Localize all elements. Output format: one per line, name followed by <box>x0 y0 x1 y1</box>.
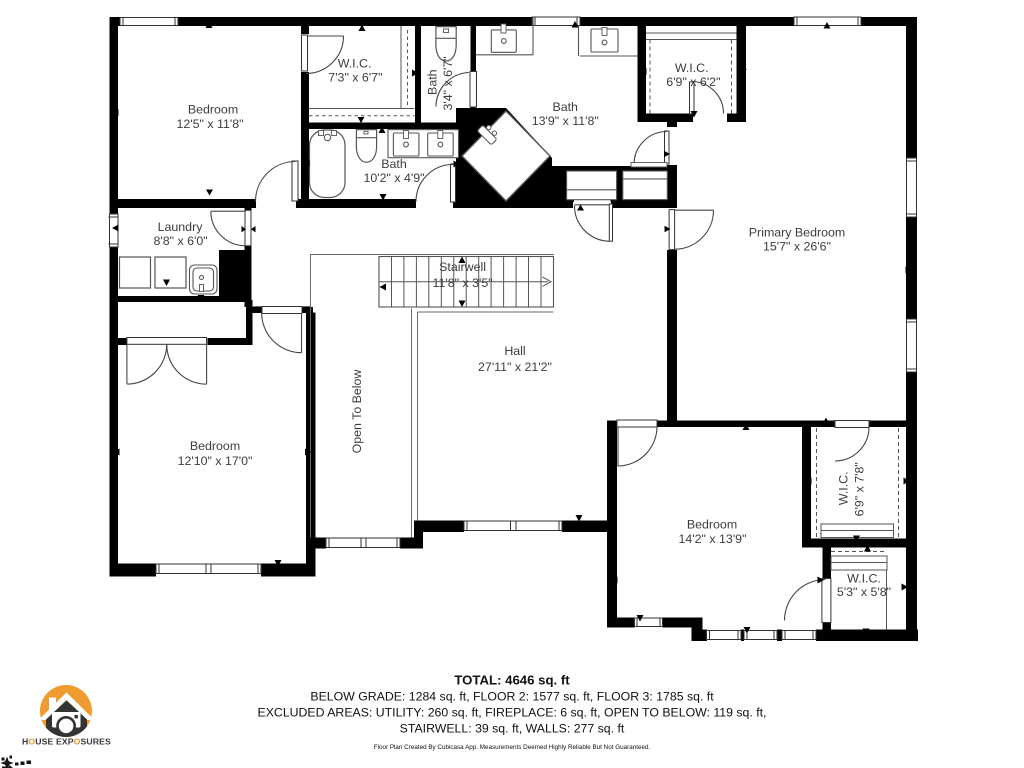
svg-text:27'11" x 21'2": 27'11" x 21'2" <box>478 360 552 374</box>
svg-text:Primary Bedroom: Primary Bedroom <box>749 226 845 240</box>
svg-text:12'10" x 17'0": 12'10" x 17'0" <box>178 454 253 468</box>
svg-text:8'8" x 6'0": 8'8" x 6'0" <box>154 234 208 248</box>
svg-text:HOUSE EXPOSURES: HOUSE EXPOSURES <box>22 737 111 747</box>
svg-text:Bedroom: Bedroom <box>687 518 737 532</box>
svg-text:Hall: Hall <box>504 344 525 358</box>
svg-text:10'2" x 4'9": 10'2" x 4'9" <box>363 171 424 185</box>
svg-text:Bath: Bath <box>426 69 440 95</box>
svg-text:BELOW GRADE: 1284 sq. ft, FLOO: BELOW GRADE: 1284 sq. ft, FLOOR 2: 1577 … <box>310 690 714 704</box>
svg-text:W.I.C.: W.I.C. <box>837 471 851 505</box>
svg-text:Stairwell: Stairwell <box>439 260 486 274</box>
svg-text:6'9" x 7'8": 6'9" x 7'8" <box>853 462 867 516</box>
svg-text:Bedroom: Bedroom <box>188 103 238 117</box>
svg-text:11'8" x 3'5": 11'8" x 3'5" <box>433 276 493 290</box>
svg-text:12'5" x 11'8": 12'5" x 11'8" <box>176 117 243 131</box>
svg-text:Laundry: Laundry <box>158 220 204 234</box>
svg-text:7'3" x 6'7": 7'3" x 6'7" <box>328 71 382 85</box>
svg-text:TOTAL: 4646 sq. ft: TOTAL: 4646 sq. ft <box>454 673 570 688</box>
svg-text:3'4" x 6'7": 3'4" x 6'7" <box>441 56 455 110</box>
svg-text:W.I.C.: W.I.C. <box>338 56 372 70</box>
svg-text:6'9" x 6'2": 6'9" x 6'2" <box>666 75 720 89</box>
svg-text:EXCLUDED AREAS: UTILITY: 260 s: EXCLUDED AREAS: UTILITY: 260 sq. ft, FIR… <box>258 706 767 720</box>
svg-text:Bath: Bath <box>381 157 407 171</box>
svg-text:Floor Plan Created By Cubicasa: Floor Plan Created By Cubicasa App. Meas… <box>374 744 651 751</box>
svg-text:14'2" x 13'9": 14'2" x 13'9" <box>679 532 747 546</box>
svg-text:STAIRWELL: 39 sq. ft, WALLS: 2: STAIRWELL: 39 sq. ft, WALLS: 277 sq. ft <box>400 722 625 736</box>
svg-text:Bedroom: Bedroom <box>190 439 240 453</box>
svg-text:15'7" x 26'6": 15'7" x 26'6" <box>763 240 831 254</box>
svg-text:5'3" x 5'8": 5'3" x 5'8" <box>837 585 891 599</box>
svg-text:W.I.C.: W.I.C. <box>675 61 709 75</box>
svg-text:W.I.C.: W.I.C. <box>847 572 881 586</box>
svg-text:Open To Below: Open To Below <box>350 370 364 454</box>
svg-text:Bath: Bath <box>552 100 578 114</box>
svg-text:13'9" x 11'8": 13'9" x 11'8" <box>532 114 599 128</box>
